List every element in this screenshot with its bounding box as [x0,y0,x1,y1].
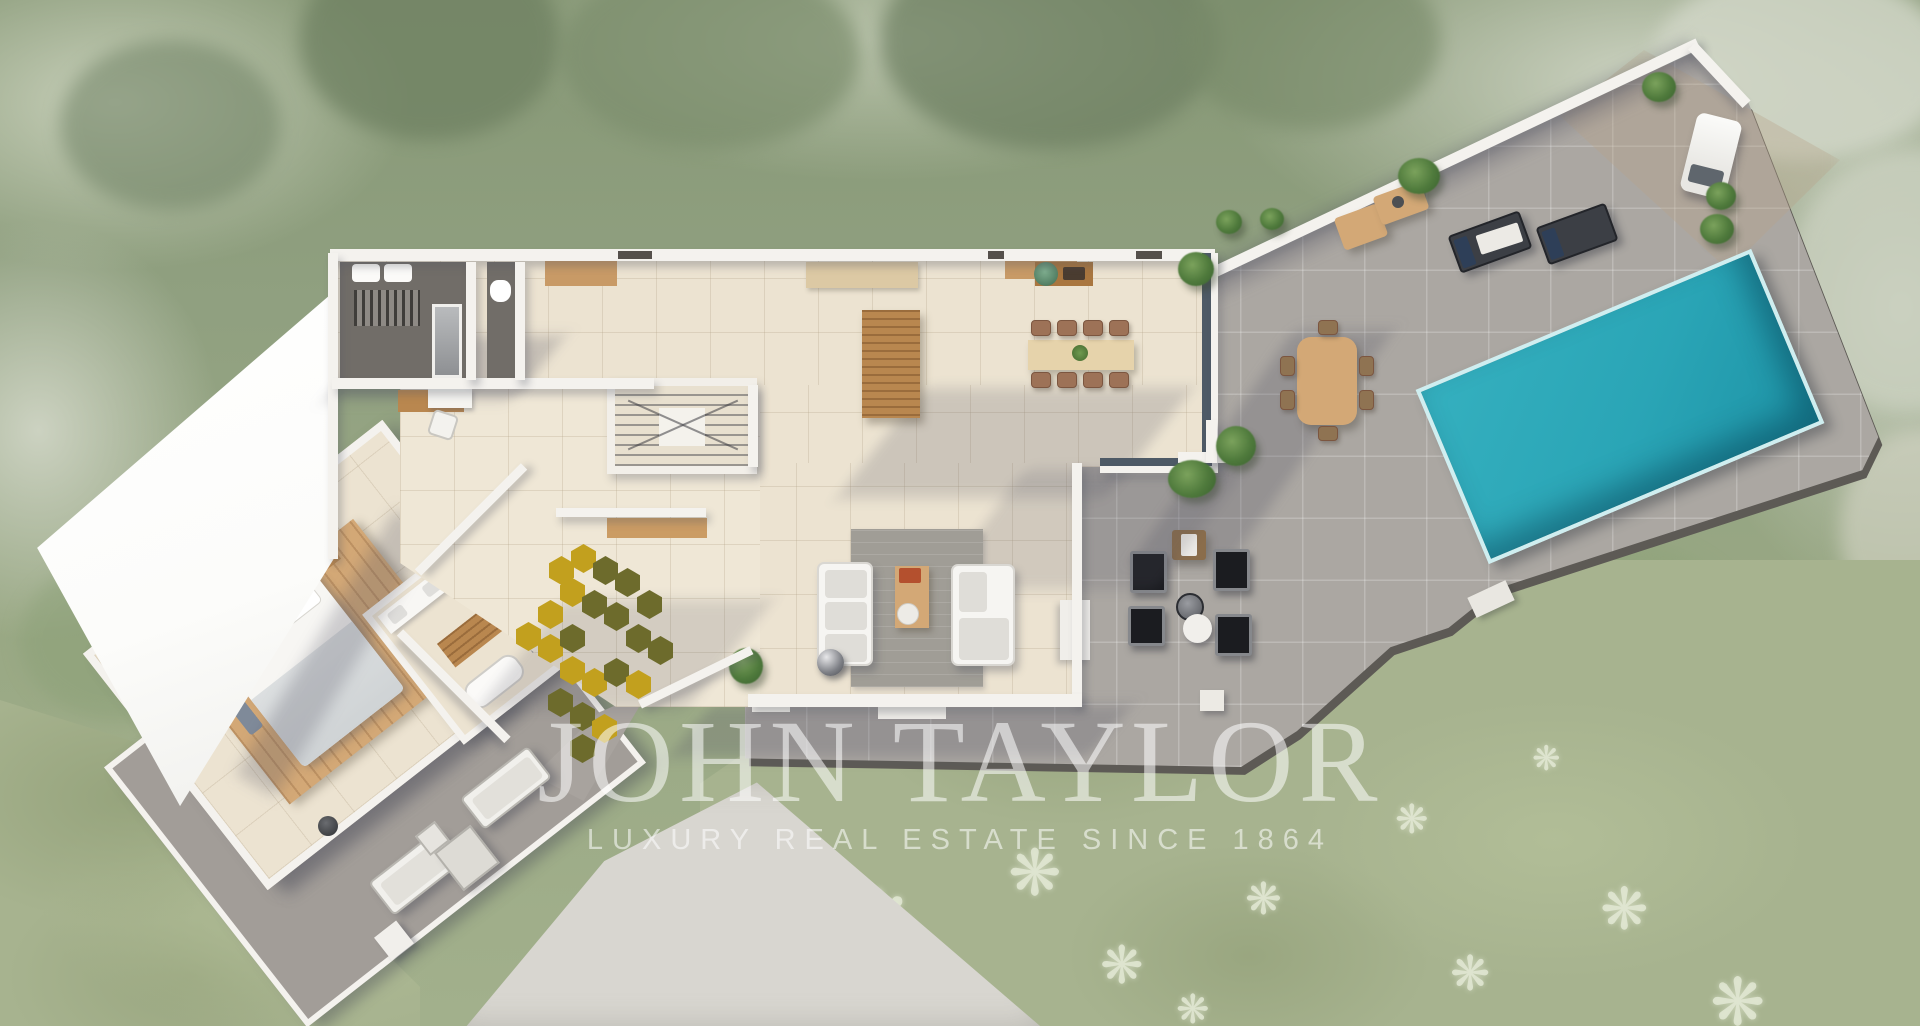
dining-chair [1109,372,1129,388]
table-plant [1072,345,1088,361]
courtyard-bench [607,518,707,538]
round-side-table [1183,614,1212,643]
sofa-chaise [951,564,1015,666]
washer [352,264,380,282]
agave-plant-icon: ❋ [1176,990,1210,1026]
decor-bowl [1392,196,1404,208]
pouf [897,603,919,625]
decor-sphere [817,649,844,676]
partition-wall [748,385,758,467]
lounge-armchair [1128,606,1165,646]
wc-room [487,262,515,382]
outdoor-chair [1280,390,1295,410]
dining-chair [1031,372,1051,388]
dining-chair [1031,320,1051,336]
agave-plant-icon: ❋ [1100,940,1144,992]
planter-bush [1178,252,1214,286]
stair-landing [659,408,705,446]
agave-plant-icon: ❋ [1710,970,1765,1026]
partition-wall [515,262,525,380]
palm-bush [1642,72,1676,102]
decor-tray [899,568,921,583]
agave-plant-icon: ❋ [1600,880,1649,938]
dryer [384,264,412,282]
grill-inset [1063,267,1085,280]
corridor-wall [332,378,654,389]
partition-wall [466,262,476,380]
hall-console [398,390,464,412]
dining-chair [1057,372,1077,388]
west-wall [328,253,338,559]
toilet [490,280,511,302]
agave-plant-icon: ❋ [1450,950,1490,998]
lounge-armchair [1215,614,1252,656]
dining-chair [1083,372,1103,388]
lounger-pillow [1453,236,1476,269]
courtyard-wall [556,508,706,517]
outdoor-chair [1359,390,1374,410]
tree-canopy [60,40,280,210]
sink [386,604,408,625]
outdoor-chair [1318,320,1338,335]
palm-bush [1398,158,1440,194]
agave-plant-icon: ❋ [1245,878,1282,922]
watermark-tagline: LUXURY REAL ESTATE SINCE 1864 [0,824,1920,857]
sofa-cushion [825,570,867,598]
plant-bowl [1034,262,1058,286]
palm-bush [1216,210,1242,234]
laundry-room [340,262,466,382]
dining-chair [1057,320,1077,336]
planter-bush [1168,460,1216,498]
kitchen-island [862,310,920,418]
utility-cabinet [432,304,462,378]
watermark-brand: JOHN TAYLOR [0,694,1920,830]
outdoor-chair [1359,356,1374,376]
planter-bush [1216,426,1256,466]
door-gap [618,251,652,259]
outdoor-dining-table [1297,337,1357,425]
living-east-wall [1072,463,1082,703]
aerial-floor-plan-rendering: ❋ ❋ ❋ ❋ ❋ ❋ ❋ ❋ ❋ ❋ ❋ ❋ [0,0,1920,1026]
outdoor-chair [1318,426,1338,441]
sofa-cushion [825,602,867,630]
lounger-pillow [1541,227,1564,260]
palm-bush [1700,214,1734,244]
door-gap [1136,251,1162,259]
door-gap [988,251,1004,259]
palm-bush [1706,182,1736,210]
hall-closet [545,258,617,286]
north-wall [330,249,1215,261]
drying-rack [354,290,420,326]
kitchen-counter [806,262,918,288]
sofa-cushion [959,572,987,612]
outdoor-chair [1280,356,1295,376]
towel [1475,222,1523,255]
lounge-armchair [1213,549,1250,591]
dining-chair [1083,320,1103,336]
dining-chair [1109,320,1129,336]
console-top [428,388,472,408]
staircase [607,378,757,474]
palm-bush [1260,208,1284,230]
sofa-cushion [959,618,1009,660]
